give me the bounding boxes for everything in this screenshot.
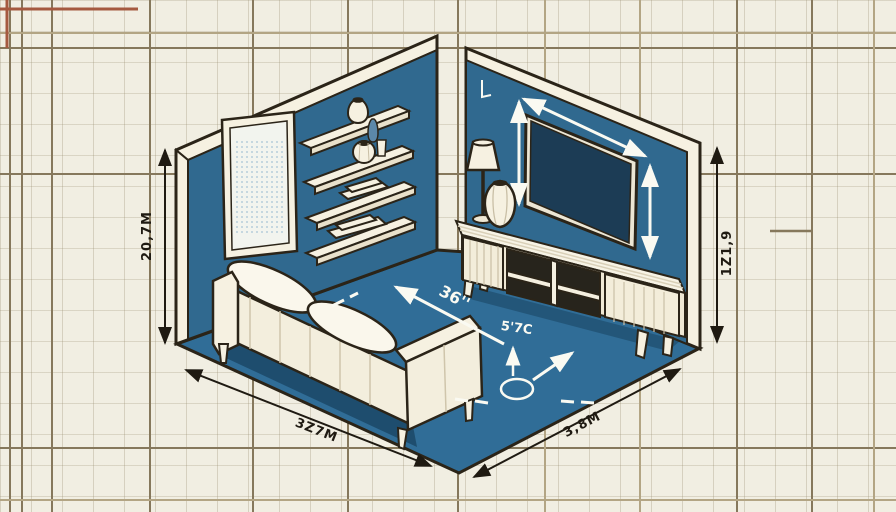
shelf-blue-bottle [368,119,378,142]
shelf-cup [377,140,386,156]
tv-stand-left-door [463,237,503,290]
floor-dash [475,401,488,403]
sofa-leg [465,399,473,421]
floor-dash [561,401,574,402]
blueprint-canvas: 36'' 5'7C 20,7M 1Z1,9 3Z7M 3,8M [0,0,896,512]
sofa-leg [219,344,228,363]
picture-artwork [236,140,284,236]
left-wall-side-edge [176,150,188,344]
label-left-wall-height: 20,7M [140,211,155,261]
room-illustration: 36'' 5'7C 20,7M 1Z1,9 3Z7M 3,8M [0,0,896,512]
tv-stand-shelf-divider [551,260,557,306]
grid-red-margin-lines [0,0,138,48]
floor-dash [455,399,468,401]
tv-stand-leg [663,336,673,356]
floor-dash [581,402,594,403]
decor-vase [485,181,515,228]
picture-frame [222,112,297,259]
sofa-left-armrest [213,272,238,354]
label-right-wall-height: 1Z1,9 [720,230,735,277]
